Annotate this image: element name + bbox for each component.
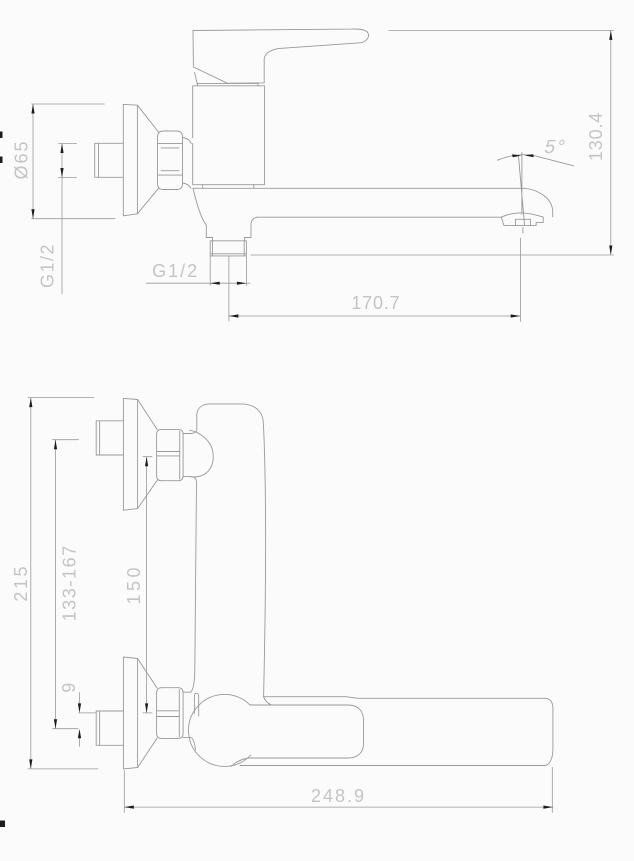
svg-text:9: 9 bbox=[59, 681, 79, 693]
svg-text:Ø65: Ø65 bbox=[12, 139, 32, 179]
svg-text:215: 215 bbox=[11, 564, 31, 602]
svg-text:248.9: 248.9 bbox=[311, 786, 366, 806]
svg-text:133-167: 133-167 bbox=[60, 544, 80, 621]
svg-text:130.4: 130.4 bbox=[586, 112, 606, 161]
svg-text:170.7: 170.7 bbox=[351, 293, 400, 313]
svg-text:150: 150 bbox=[124, 564, 144, 605]
svg-text:G1/2: G1/2 bbox=[38, 243, 58, 288]
svg-text:G1/2: G1/2 bbox=[152, 261, 199, 281]
